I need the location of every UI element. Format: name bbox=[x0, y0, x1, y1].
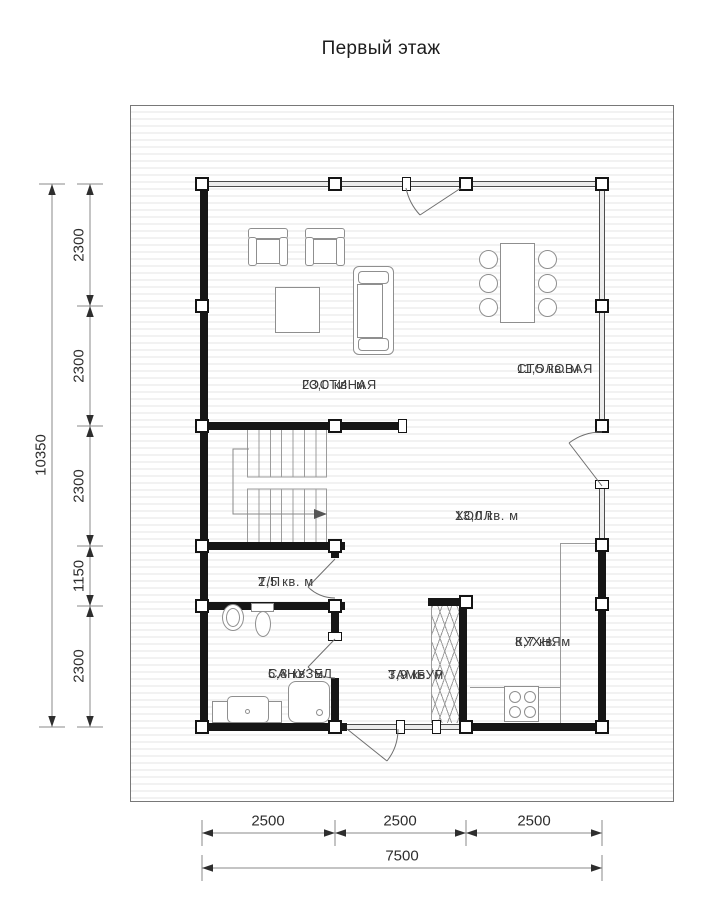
door-jamb-icon bbox=[398, 419, 407, 433]
dim-label: 2500 bbox=[517, 813, 550, 830]
post-icon bbox=[595, 419, 609, 433]
post-icon bbox=[195, 177, 209, 191]
floor-plan-page: Первый этаж bbox=[0, 0, 717, 898]
wall-left bbox=[200, 184, 208, 731]
door-jamb-icon bbox=[396, 720, 405, 734]
door-jamb-icon bbox=[432, 720, 441, 734]
dim-label: 2300 bbox=[71, 469, 88, 502]
post-icon bbox=[595, 299, 609, 313]
dim-total-label: 7500 bbox=[385, 848, 418, 865]
window-post-icon bbox=[595, 597, 609, 611]
dining-table-icon bbox=[500, 243, 535, 323]
post-icon bbox=[195, 539, 209, 553]
drain-icon bbox=[245, 709, 250, 714]
wall-shaft-top bbox=[428, 598, 461, 606]
cellar-ladder-icon bbox=[431, 606, 459, 723]
drain-icon bbox=[316, 709, 323, 716]
post-icon bbox=[595, 720, 609, 734]
dim-label: 2500 bbox=[251, 813, 284, 830]
post-icon bbox=[195, 720, 209, 734]
wall-shaft-right bbox=[459, 606, 467, 723]
wall-hall-seg3 bbox=[331, 678, 339, 723]
door-jamb-icon bbox=[595, 480, 609, 489]
wall-bottom-left bbox=[200, 723, 347, 731]
chair-icon bbox=[538, 298, 557, 317]
sink-icon bbox=[222, 604, 244, 631]
room-area: 3,9 кв. м bbox=[388, 666, 444, 683]
wall-right-mid bbox=[599, 486, 605, 544]
wall-bottom-right bbox=[461, 723, 606, 731]
post-icon bbox=[459, 177, 473, 191]
post-icon bbox=[195, 599, 209, 613]
chair-icon bbox=[479, 250, 498, 269]
door-jamb-icon bbox=[328, 632, 342, 641]
wall-right-lower bbox=[598, 544, 606, 731]
dim-label: 1150 bbox=[71, 560, 88, 592]
armchair-icon bbox=[305, 228, 345, 266]
chair-icon bbox=[538, 250, 557, 269]
toilet-icon bbox=[255, 611, 271, 637]
post-icon bbox=[328, 177, 342, 191]
chair-icon bbox=[479, 274, 498, 293]
chair-icon bbox=[479, 298, 498, 317]
stairs-lower-flight-icon bbox=[247, 489, 327, 542]
page-title: Первый этаж bbox=[322, 38, 441, 60]
post-icon bbox=[328, 720, 342, 734]
shower-tray-icon bbox=[288, 681, 330, 723]
dim-total-label: 10350 bbox=[33, 434, 50, 476]
chair-icon bbox=[538, 274, 557, 293]
sofa-icon bbox=[353, 266, 394, 355]
wall-stairs-top bbox=[200, 422, 404, 430]
door-jamb-icon bbox=[402, 177, 411, 191]
dim-label: 2300 bbox=[71, 228, 88, 261]
armchair-icon bbox=[248, 228, 288, 266]
dim-label: 2300 bbox=[71, 349, 88, 382]
post-icon bbox=[328, 539, 342, 553]
post-icon bbox=[195, 419, 209, 433]
wall-tp-top bbox=[200, 542, 345, 550]
room-area: 13,0 кв. м bbox=[455, 507, 519, 524]
post-icon bbox=[328, 419, 342, 433]
post-icon bbox=[195, 299, 209, 313]
coffee-table-icon bbox=[275, 287, 320, 333]
room-area: 5,8 кв. м bbox=[268, 665, 324, 682]
dim-label: 2500 bbox=[383, 813, 416, 830]
room-area: 11,5 кв. м bbox=[517, 360, 580, 377]
post-icon bbox=[328, 599, 342, 613]
room-area: 8,7 кв. м bbox=[515, 633, 571, 650]
post-icon bbox=[595, 177, 609, 191]
post-icon bbox=[459, 595, 473, 609]
wall-hall-seg2 bbox=[331, 610, 339, 632]
stove-icon bbox=[504, 686, 539, 722]
room-area: 23,0 кв. м bbox=[302, 376, 366, 393]
post-icon bbox=[459, 720, 473, 734]
dim-label: 2300 bbox=[71, 649, 88, 682]
post-icon bbox=[595, 538, 609, 552]
stairs-upper-flight-icon bbox=[247, 430, 327, 477]
room-area: 2,5 кв. м bbox=[258, 573, 314, 590]
